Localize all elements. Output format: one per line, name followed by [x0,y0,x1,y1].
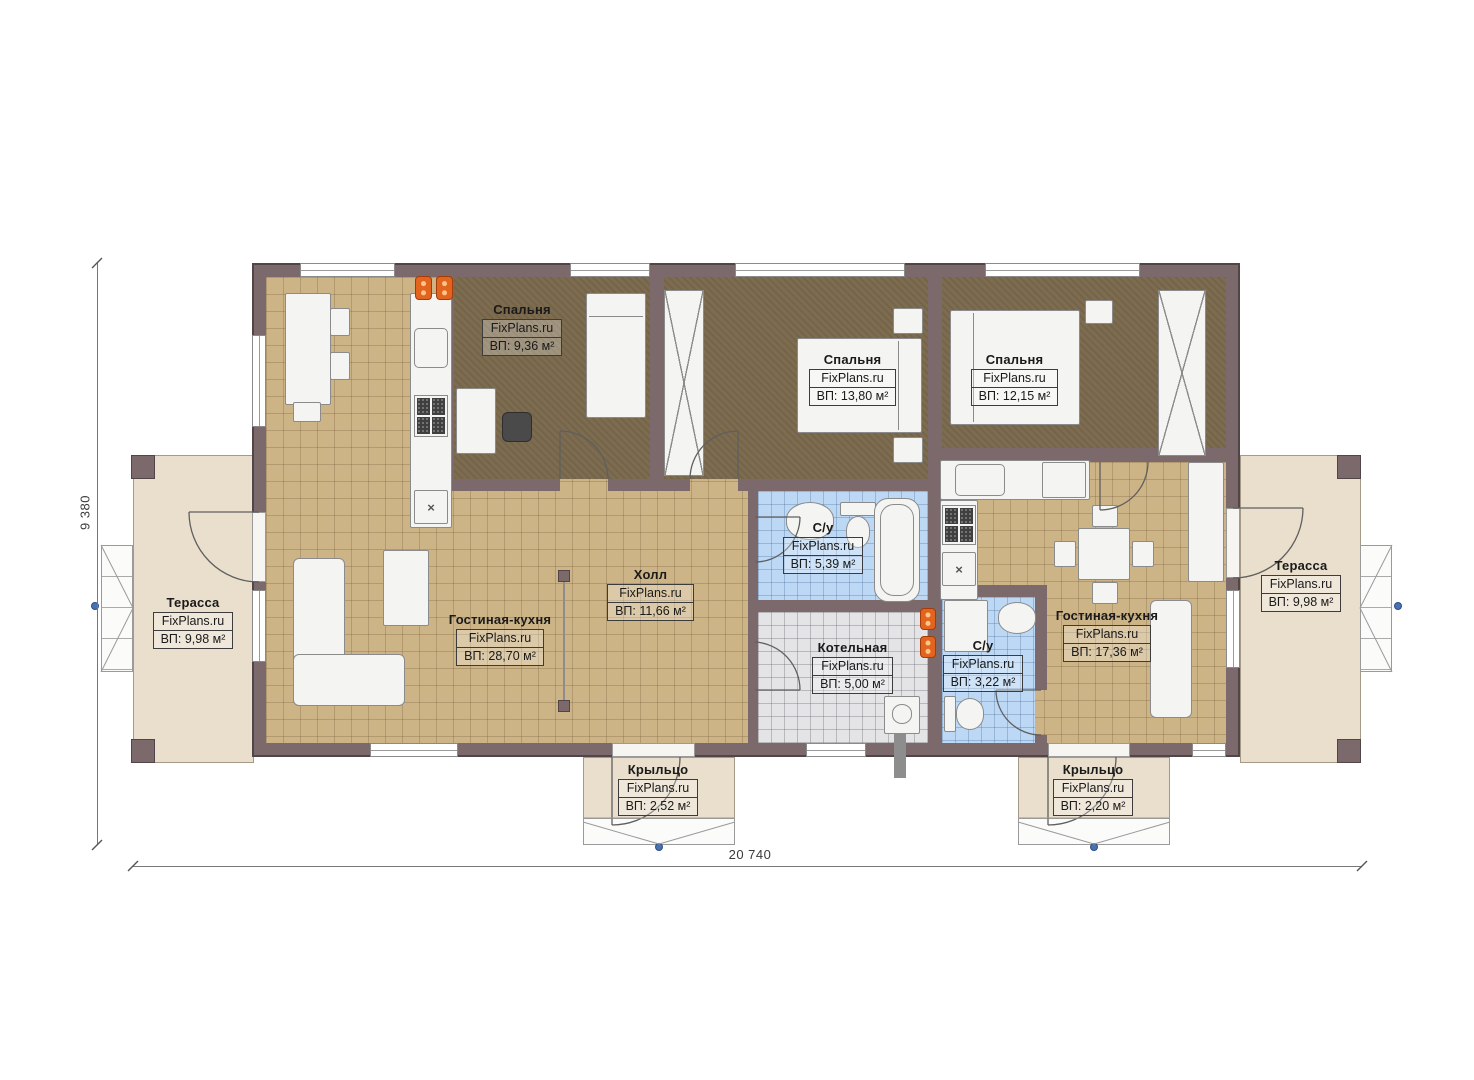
room-name: Гостиная-кухня [449,612,551,627]
room-name: С/у [973,638,994,653]
coffee-table [383,550,429,626]
room-name: Котельная [818,640,888,655]
wardrobe [1158,290,1206,456]
window [252,590,266,662]
window [370,743,458,757]
room-label-hall: Холл FixPlans.ru ВП: 11,66 м² [588,567,713,621]
dimension-line-horizontal [133,866,1362,867]
marker-dot [1394,602,1402,610]
room-name: Терасса [1275,558,1328,573]
room-name: С/у [813,520,834,535]
kitchen-sink [955,464,1005,496]
brand-watermark: FixPlans.ru [154,613,233,631]
dining-table [1078,528,1130,580]
chair-dark [502,412,532,442]
brand-watermark: FixPlans.ru [1262,576,1341,594]
brand-watermark: FixPlans.ru [1064,626,1150,644]
nightstand [1085,300,1113,324]
wall-hall-boiler [748,690,758,743]
kitchen-sink [414,328,448,368]
room-area: ВП: 11,66 м² [608,603,693,620]
brand-watermark: FixPlans.ru [483,320,562,338]
porch-left-steps [583,818,735,845]
window [252,335,266,427]
stove-burners [942,505,976,545]
wall-hall-bath [748,479,758,517]
kitchen-table [285,293,331,405]
room-name: Терасса [167,595,220,610]
terrace-post [1337,455,1361,479]
wall-bedrooms-hall [608,479,690,491]
door-terrace-right [1226,508,1240,578]
wall-bedroom1-bedroom2 [650,277,664,479]
door-entrance-left [612,743,695,757]
room-area: ВП: 2,20 м² [1054,798,1133,815]
brand-watermark: FixPlans.ru [813,658,892,676]
window [985,263,1140,277]
dimension-width-label: 20 740 [710,847,790,862]
chair [1132,541,1154,567]
chair [1092,505,1118,527]
room-area: ВП: 17,36 м² [1064,644,1150,661]
room-label-terrace-left: Терасса FixPlans.ru ВП: 9,98 м² [132,595,254,649]
brand-watermark: FixPlans.ru [457,630,543,648]
room-label-bedroom-2: Спальня FixPlans.ru ВП: 13,80 м² [790,352,915,406]
room-label-boiler: Котельная FixPlans.ru ВП: 5,00 м² [790,640,915,694]
room-area: ВП: 9,98 м² [154,631,233,648]
room-label-bath-left: С/у FixPlans.ru ВП: 5,39 м² [768,520,878,574]
window [570,263,650,277]
room-name: Спальня [493,302,551,317]
heater-icon [415,276,432,300]
room-area: ВП: 5,39 м² [784,556,863,573]
nightstand [893,308,923,334]
room-name: Крыльцо [628,762,689,777]
sink [998,602,1036,634]
brand-watermark: FixPlans.ru [972,370,1058,388]
room-label-porch-left: Крыльцо FixPlans.ru ВП: 2,52 м² [597,762,719,816]
chair [330,352,350,380]
partition-post [558,570,570,582]
window [1226,590,1240,668]
room-name: Холл [634,567,667,582]
brand-watermark: FixPlans.ru [784,538,863,556]
room-area: ВП: 9,36 м² [483,338,562,355]
brand-watermark: FixPlans.ru [1054,780,1133,798]
door-terrace-left [252,512,266,582]
chimney-pipe [894,734,906,778]
brand-watermark: FixPlans.ru [944,656,1023,674]
chair [1092,582,1118,604]
terrace-post [131,739,155,763]
porch-right-steps [1018,818,1170,845]
desk [456,388,496,454]
nightstand [893,437,923,463]
room-label-bedroom-3: Спальня FixPlans.ru ВП: 12,15 м² [952,352,1077,406]
toilet-bowl [956,698,984,730]
marker-dot [1090,843,1098,851]
wardrobe [664,290,704,476]
stove-burners [414,395,448,437]
brand-watermark: FixPlans.ru [619,780,698,798]
brand-watermark: FixPlans.ru [810,370,896,388]
window [1192,743,1226,757]
dishwasher: × [942,552,976,586]
dimension-line-vertical [97,263,98,845]
toilet-tank [944,696,956,732]
floor-plan-canvas: × × [0,0,1474,1080]
heater-icon [436,276,453,300]
terrace-post [131,455,155,479]
room-label-living-right: Гостиная-кухня FixPlans.ru ВП: 17,36 м² [1032,608,1182,662]
room-name: Гостиная-кухня [1056,608,1158,623]
dishwasher: × [414,490,448,524]
room-label-porch-right: Крыльцо FixPlans.ru ВП: 2,20 м² [1032,762,1154,816]
wall-bathright-side [1035,735,1047,743]
room-name: Спальня [986,352,1044,367]
sofa [293,654,405,706]
room-label-bath-right: С/у FixPlans.ru ВП: 3,22 м² [928,638,1038,692]
chair [1054,541,1076,567]
room-area: ВП: 28,70 м² [457,648,543,665]
wall-bedrooms-hall [446,479,560,491]
bed-single [586,293,646,418]
partition-post [558,700,570,712]
room-area: ВП: 3,22 м² [944,674,1023,691]
room-name: Спальня [824,352,882,367]
room-area: ВП: 5,00 м² [813,676,892,693]
terrace-post [1337,739,1361,763]
wall-bedrooms-hall [738,479,928,491]
room-area: ВП: 9,98 м² [1262,594,1341,611]
chair [330,308,350,336]
room-area: ВП: 12,15 м² [972,388,1058,405]
room-label-living-left: Гостиная-кухня FixPlans.ru ВП: 28,70 м² [425,612,575,666]
bathtub-inner [880,504,914,596]
room-name: Крыльцо [1063,762,1124,777]
fridge [1042,462,1086,498]
cabinet [1188,462,1224,582]
terrace-left-steps [101,545,133,672]
window [300,263,395,277]
marker-dot [655,843,663,851]
dimension-height-label: 9 380 [78,483,93,543]
chair [293,402,321,422]
heater-icon [920,608,936,630]
window [735,263,905,277]
brand-watermark: FixPlans.ru [608,585,693,603]
room-area: ВП: 2,52 м² [619,798,698,815]
room-label-bedroom-1: Спальня FixPlans.ru ВП: 9,36 м² [462,302,582,356]
room-label-terrace-right: Терасса FixPlans.ru ВП: 9,98 м² [1240,558,1362,612]
terrace-right-steps [1360,545,1392,672]
boiler-drum [892,704,912,724]
toilet-tank [840,502,876,516]
window [806,743,866,757]
room-area: ВП: 13,80 м² [810,388,896,405]
door-entrance-right [1048,743,1130,757]
